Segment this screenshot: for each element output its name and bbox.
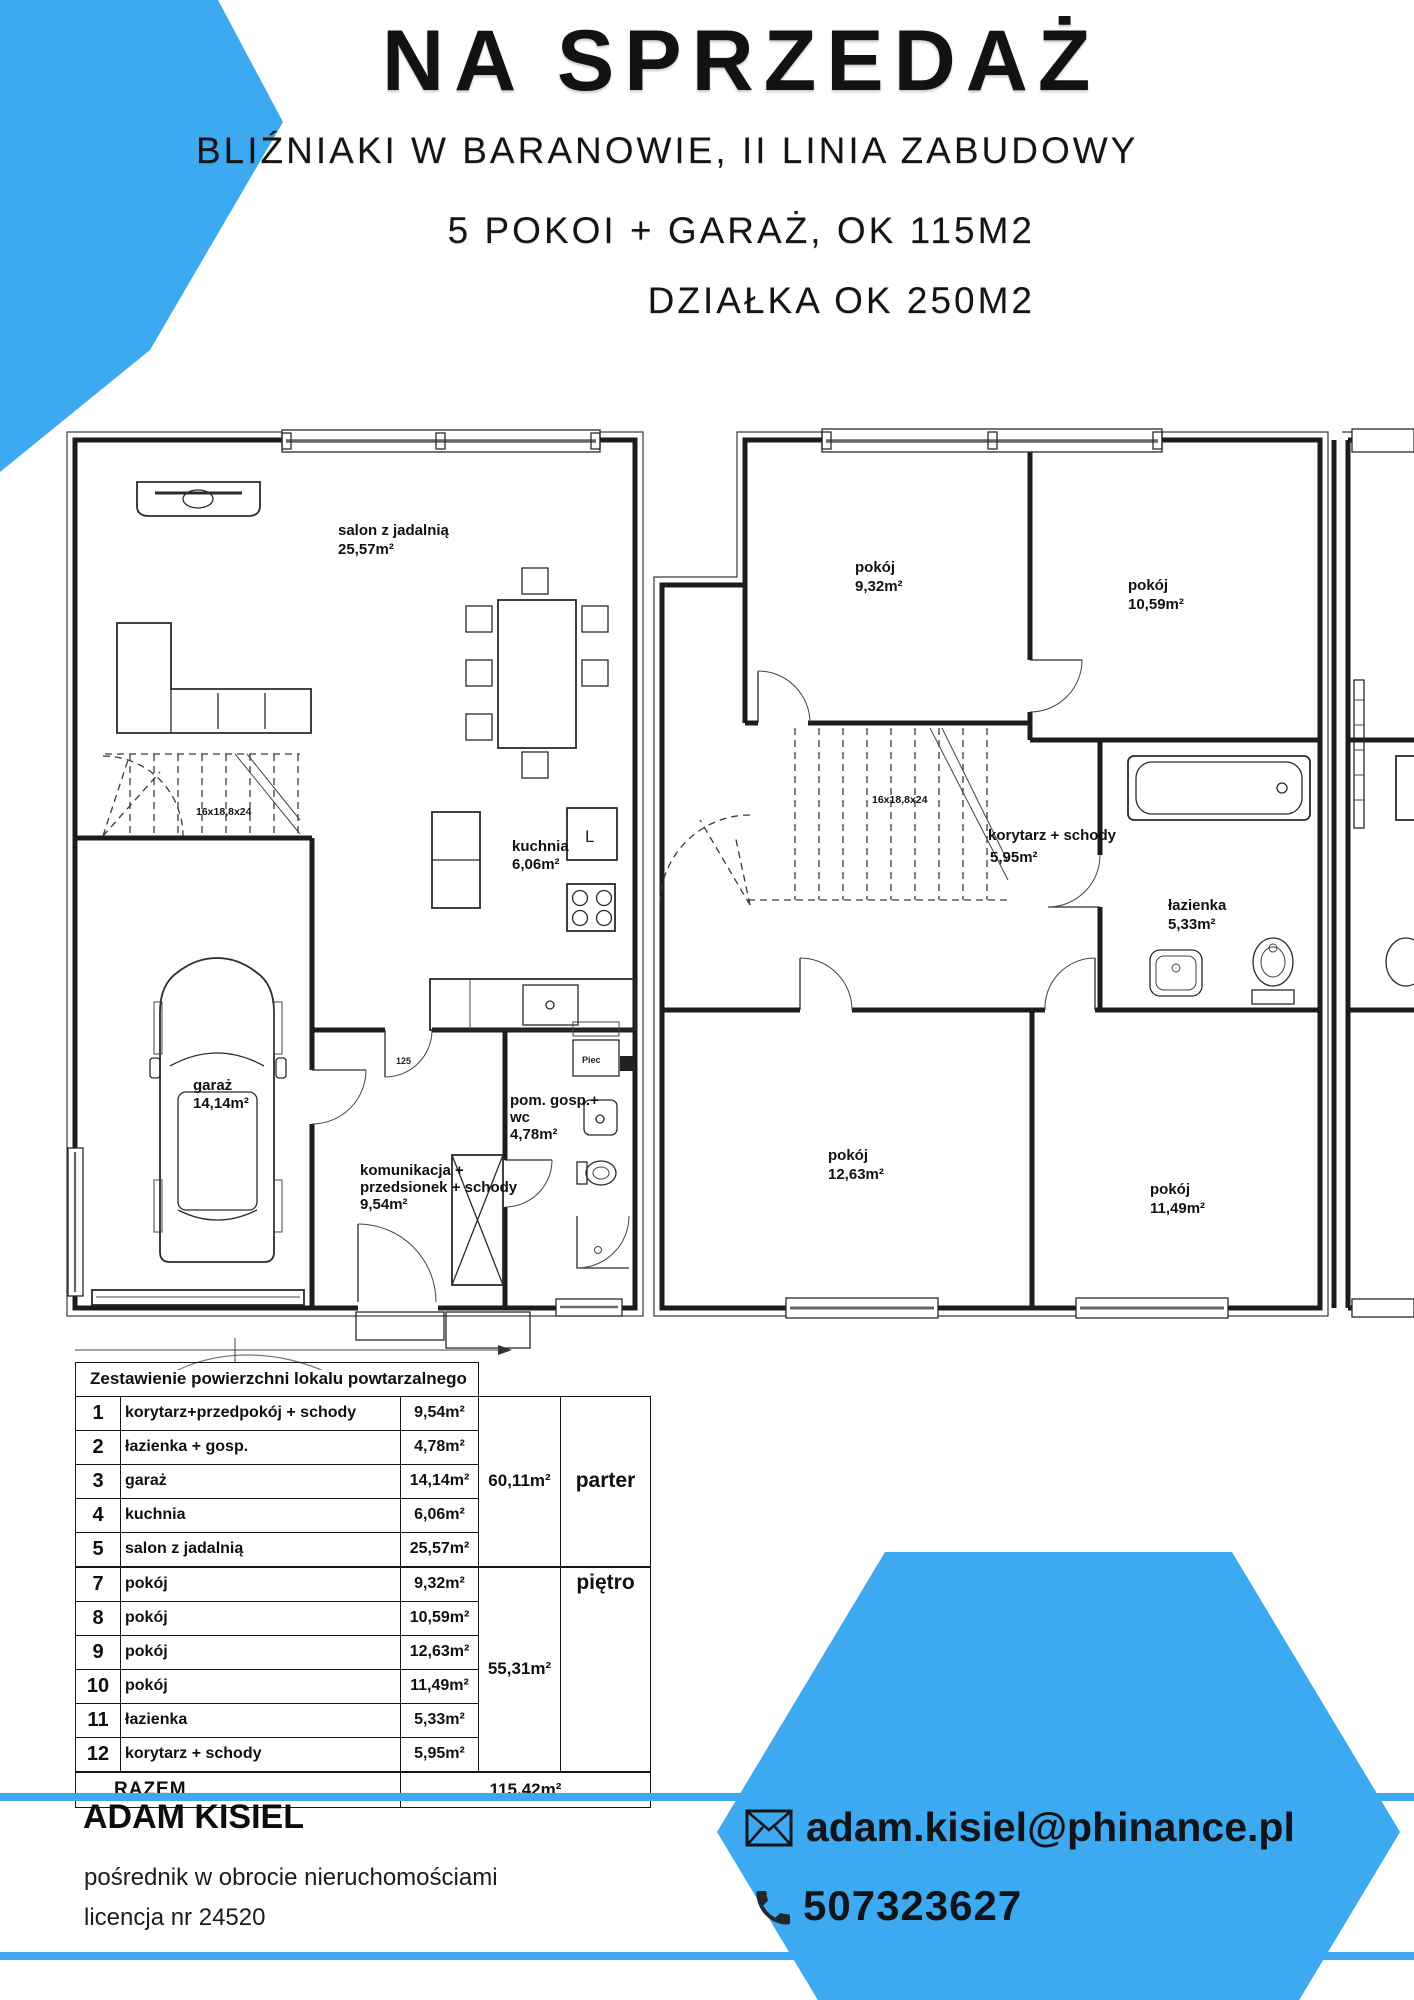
room-area-pokoj-a: 9,32m² [855, 578, 903, 595]
room-area-salon: 25,57m² [338, 541, 394, 558]
room-label-pom-gosp: pom. gosp.+ [510, 1092, 599, 1109]
room-area-korytarz: 5,95m² [990, 849, 1038, 866]
adjacent-unit [1342, 429, 1414, 1317]
phone-icon [750, 1884, 794, 1930]
flyer: NA SPRZEDAŻ BLIŹNIAKI W BARANOWIE, II LI… [0, 0, 1414, 2000]
room-label-garaz: garaż [193, 1077, 232, 1094]
email-icon [745, 1808, 793, 1848]
tv-cabinet [137, 482, 260, 516]
parter-room-labels: salon z jadalnią 25,57m² kuchnia 6,06m² … [193, 522, 599, 1213]
room-area-kuchnia: 6,06m² [512, 856, 560, 873]
room-label-pokoj-d: pokój [1150, 1181, 1190, 1198]
subtitle-plot: DZIAŁKA OK 250M2 [648, 280, 1035, 322]
floor-plan-pietro: 16x18,8x24 pokój 9,32m² [654, 429, 1414, 1318]
email-address: adam.kisiel@phinance.pl [806, 1804, 1295, 1851]
bath-sink [1150, 950, 1202, 996]
room-label-pokoj-c: pokój [828, 1147, 868, 1164]
svg-text:przedsionek + schody: przedsionek + schody [360, 1179, 518, 1196]
sofa [117, 623, 311, 733]
entry-step [446, 1312, 530, 1348]
room-area-pokoj-d: 11,49m² [1150, 1200, 1205, 1217]
room-area-garaz: 14,14m² [193, 1095, 249, 1112]
room-area-pom-gosp: 4,78m² [510, 1126, 558, 1143]
stairs-dimension: 16x18,8x24 [196, 806, 252, 818]
room-label-lazienka: łazienka [1168, 897, 1227, 914]
room-area-pokoj-c: 12,63m² [828, 1166, 884, 1183]
dining-table [466, 568, 608, 778]
door-width-label: 125 [396, 1056, 411, 1066]
parter-windows [68, 430, 622, 1316]
svg-text:Piec: Piec [582, 1055, 601, 1065]
svg-text:L: L [585, 827, 594, 846]
room-area-pokoj-b: 10,59m² [1128, 596, 1184, 613]
subtitle-rooms: 5 POKOI + GARAŻ, OK 115M2 [448, 210, 1035, 252]
stove [567, 884, 615, 931]
room-label-kuchnia: kuchnia [512, 838, 569, 855]
garage-door [92, 1290, 304, 1305]
shower [577, 1216, 629, 1268]
agent-license: licencja nr 24520 [84, 1904, 265, 1932]
room-label-salon: salon z jadalnią [338, 522, 450, 539]
agent-role: pośrednik w obrocie nieruchomościami [84, 1864, 498, 1892]
parter-stairs [103, 754, 300, 836]
bath-toilet [1252, 938, 1294, 1004]
floor-plan-parter: 125 [67, 430, 643, 1348]
phone-number: 507323627 [803, 1882, 1022, 1930]
agent-name: ADAM KISIEL [83, 1798, 304, 1837]
page-title: NA SPRZEDAŻ [382, 12, 1100, 111]
bathtub [1128, 756, 1310, 820]
floor-plans: 125 [0, 420, 1414, 1370]
room-label-korytarz: korytarz + schody [988, 827, 1117, 844]
table-title: Zestawienie powierzchni lokalu powtarzal… [76, 1363, 479, 1397]
room-label-pokoj-a: pokój [855, 559, 895, 576]
room-area-komunikacja: 9,54m² [360, 1196, 408, 1213]
kitchen-island [432, 812, 480, 908]
blue-corner-shape [0, 0, 283, 472]
room-label-komunikacja: komunikacja + [360, 1162, 464, 1179]
room-area-lazienka: 5,33m² [1168, 916, 1216, 933]
table-row: 1 korytarz+przedpokój + schody 9,54m² 60… [76, 1396, 651, 1430]
stairs-dimension: 16x18,8x24 [872, 794, 928, 806]
pietro-stairs [660, 728, 1010, 905]
pietro-outer-wall [662, 440, 1320, 1308]
subtitle-location: BLIŹNIAKI W BARANOWIE, II LINIA ZABUDOWY [196, 130, 1138, 172]
parter-outer-wall [75, 440, 635, 1308]
svg-text:wc: wc [509, 1109, 530, 1126]
fridge: L [567, 808, 617, 860]
wc-toilet [577, 1161, 616, 1185]
room-label-pokoj-b: pokój [1128, 577, 1168, 594]
